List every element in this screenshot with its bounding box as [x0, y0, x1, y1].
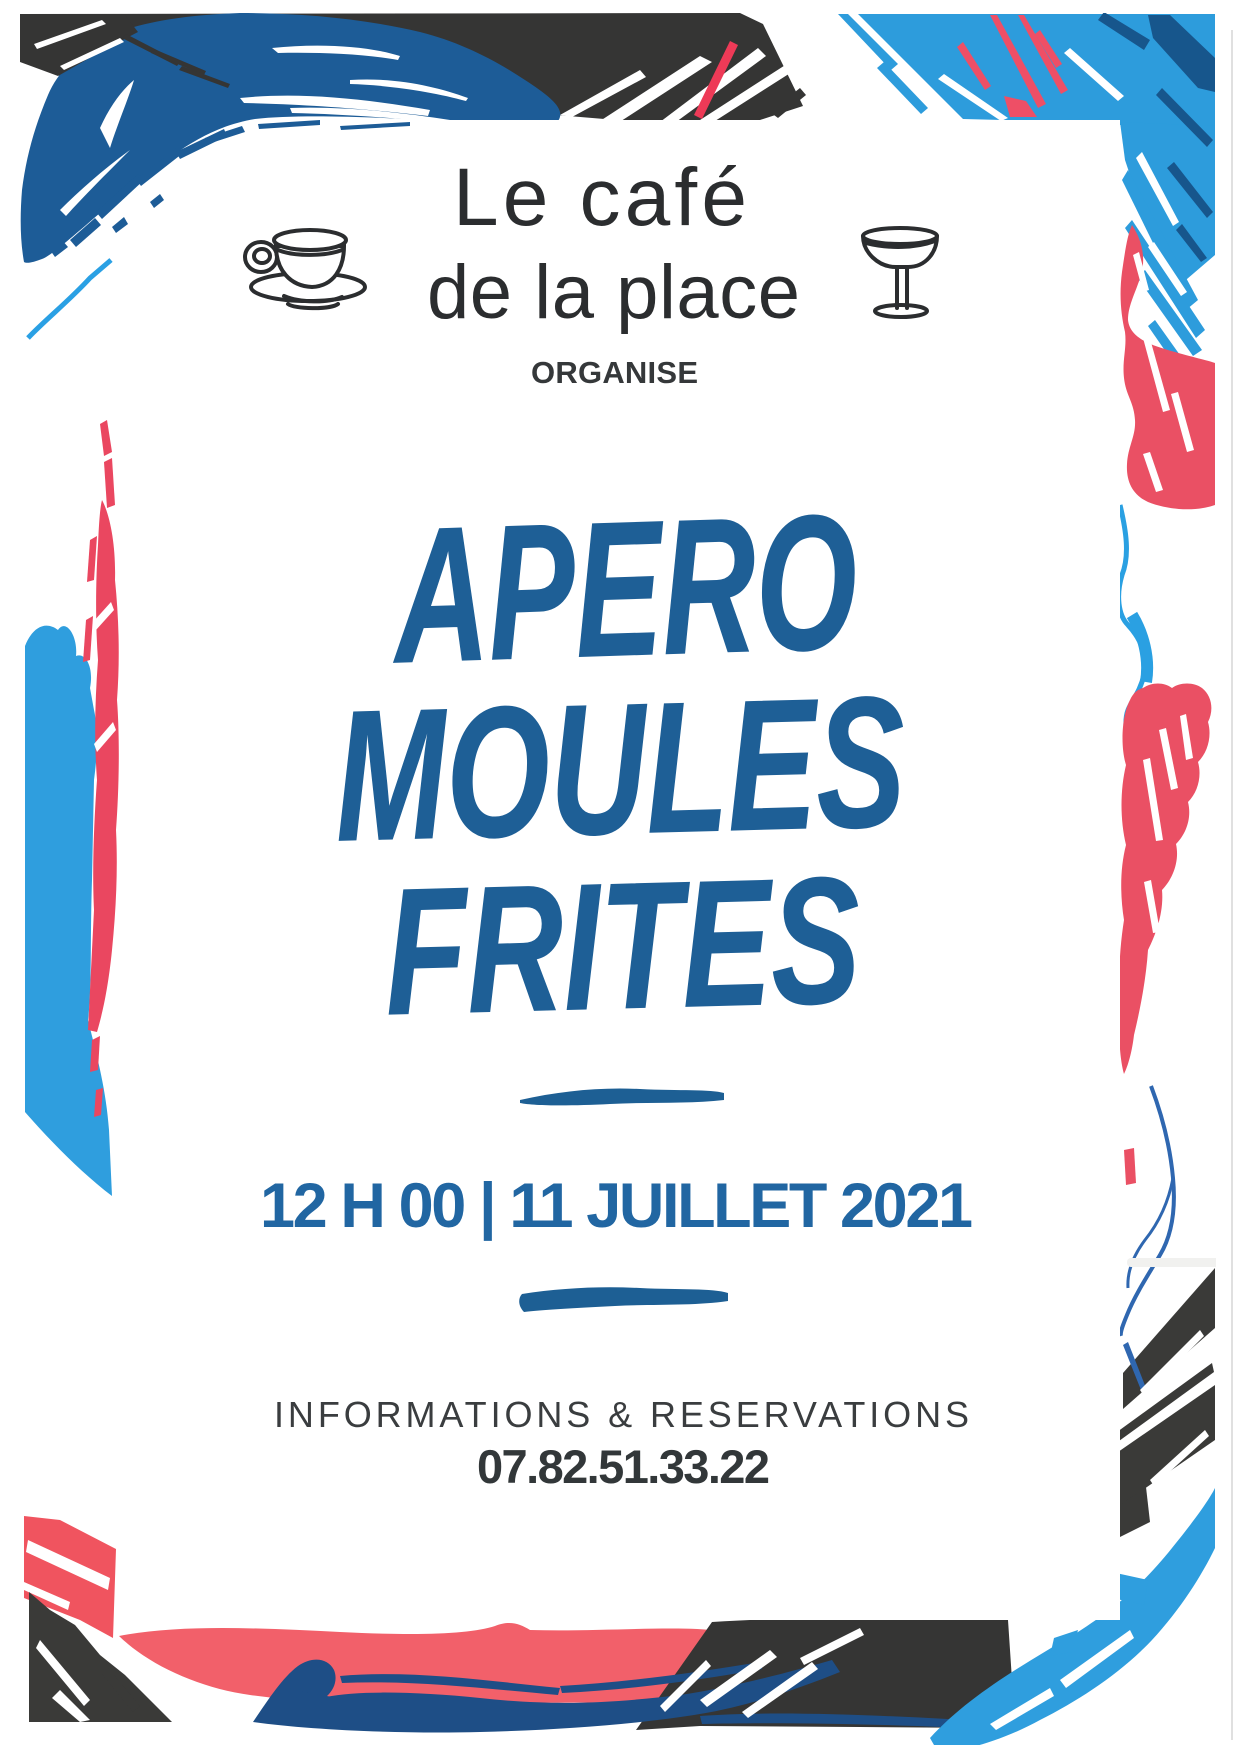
svg-text:de la place: de la place — [427, 250, 800, 335]
svg-text:Le café: Le café — [453, 152, 747, 243]
svg-text:FRITES: FRITES — [382, 840, 862, 1053]
svg-text:ORGANISE: ORGANISE — [531, 355, 698, 390]
svg-text:07.82.51.33.22: 07.82.51.33.22 — [477, 1440, 770, 1493]
svg-text:INFORMATIONS & RESERVATIONS: INFORMATIONS & RESERVATIONS — [274, 1394, 969, 1435]
svg-text:12 H 00 | 11 JUILLET 2021: 12 H 00 | 11 JUILLET 2021 — [260, 1171, 973, 1241]
